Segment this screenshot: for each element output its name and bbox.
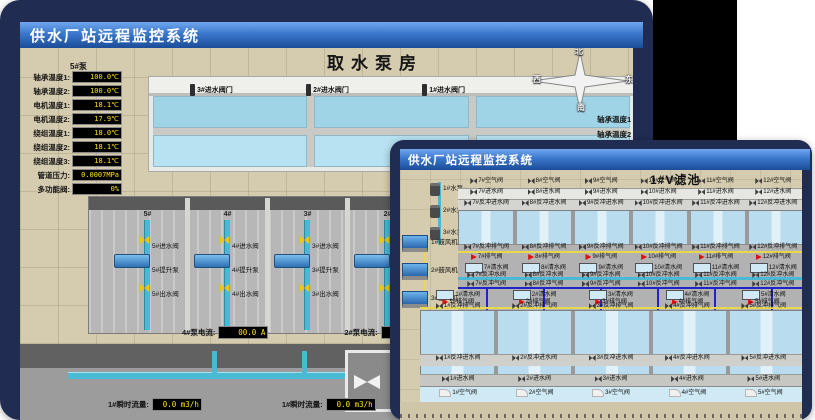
filter-pool	[633, 211, 691, 245]
inlet-valve-label: 3#进水阀	[312, 240, 339, 250]
readout-label: 绕组温度1:	[26, 128, 70, 139]
inlet-valve-icon[interactable]	[528, 189, 535, 195]
backwash-vent-valve: 3#反冲排气阀	[573, 303, 649, 309]
flow-readout: 1#瞬时流量: 0.0 m3/h	[282, 398, 376, 411]
backwash-water-valve-icon[interactable]	[695, 272, 702, 278]
inlet-valve: 4#进水阀	[649, 376, 725, 382]
air-valve: 3#空气阀	[573, 389, 649, 397]
air-valve-label: 1#空气阀	[452, 390, 477, 396]
inlet-valve-icon[interactable]	[698, 189, 705, 195]
backwash-inlet-valve: 1#反冲进水阀	[420, 355, 496, 361]
backwash-inlet-valve: 9#反冲进水阀	[573, 200, 630, 206]
readout-row: 绕组温度1: 18.0℃	[26, 128, 166, 138]
readout-value-display[interactable]: 0%	[72, 183, 122, 195]
inlet-valve-icon[interactable]	[755, 189, 762, 195]
air-valve-label: 10#空气阀	[649, 178, 677, 184]
clean-water-valve-label: 9#清水阀	[598, 265, 623, 271]
air-valve-label: 8#空气阀	[536, 178, 561, 184]
backwash-inlet-valve-icon[interactable]	[579, 200, 586, 206]
bay-number: 5#	[110, 211, 185, 218]
inlet-valve-label: 10#进水阀	[649, 189, 677, 195]
bottom-backwash-vent-row: 1#反冲排气阀 2#反冲排气阀 3#反冲排气阀 4#反冲排气阀 5#反冲排气阀	[420, 303, 802, 309]
right-panel-partial-label: 轴承温度1	[597, 114, 631, 125]
air-pipe-elbow-icon	[669, 389, 681, 397]
backwash-air-valve-icon[interactable]	[525, 281, 532, 287]
blower-icon[interactable]	[402, 235, 428, 252]
top-backwash-water-row: 7#反冲水阀 8#反冲水阀 9#反冲水阀 10#反冲水阀 11#反冲水阀 12#…	[458, 272, 802, 278]
lift-pump-icon[interactable]	[354, 254, 390, 268]
backwash-air-valve-label: 12#反冲气阀	[760, 281, 794, 287]
front-window-title: 供水厂站远程监控系统	[408, 152, 533, 168]
backwash-inlet-valve-icon[interactable]	[749, 200, 756, 206]
backwash-inlet-valve-label: 1#反冲进水阀	[444, 355, 481, 361]
backwash-air-valve: 10#反冲气阀	[630, 281, 687, 287]
readout-label: 管道压力:	[26, 170, 70, 181]
filter-pool	[575, 211, 633, 245]
backwash-inlet-valve-icon[interactable]	[512, 355, 519, 361]
bay-riser-pipe	[144, 220, 150, 330]
filter-pools-7-12	[458, 210, 802, 246]
bottom-air-valve-row: 1#空气阀 2#空气阀 3#空气阀 4#空气阀 5#空气阀	[420, 389, 802, 397]
vent-valve: 7#排气阀	[458, 254, 515, 260]
flow-label: 1#瞬时流量:	[282, 399, 323, 410]
pump-bays: 5# 5#进水阀 5#提升泵 5#出水阀 4# 4#进水阀 4#提升泵	[110, 198, 430, 332]
backwash-water-valve-label: 11#反冲水阀	[703, 272, 737, 278]
backwash-inlet-valve-label: 7#反冲进水阀	[472, 200, 509, 206]
inlet-valve-label: 2#进水阀	[526, 376, 551, 382]
top-backwash-vent-row: 7#反冲排气阀 8#反冲排气阀 9#反冲排气阀 10#反冲排气阀 11#反冲排气…	[458, 244, 802, 250]
readout-value-display[interactable]: 100.0℃	[72, 85, 122, 97]
readout-value-display[interactable]: 100.0℃	[72, 71, 122, 83]
air-valve: 10#空气阀	[630, 178, 687, 184]
vent-valve-label: 12#排气阀	[763, 254, 791, 260]
backwash-water-valve-label: 7#反冲水阀	[475, 272, 506, 278]
clean-water-valve-label: 11#清水阀	[712, 265, 740, 271]
lift-pump-icon[interactable]	[114, 254, 150, 268]
vent-valve-flag-icon[interactable]	[641, 254, 647, 260]
bay-riser-pipe	[304, 220, 310, 330]
backwash-inlet-valve: 10#反冲进水阀	[630, 200, 687, 206]
inlet-valve: 10#进水阀	[630, 189, 687, 195]
backwash-inlet-valve: 11#反冲进水阀	[687, 200, 744, 206]
lift-pump-icon[interactable]	[194, 254, 230, 268]
outlet-valve-label: 4#出水阀	[232, 288, 259, 298]
gate-valve-icon[interactable]	[190, 84, 195, 96]
flow-meter-icon	[354, 375, 380, 389]
bay-number: 3#	[270, 211, 345, 218]
inlet-valve-icon[interactable]	[747, 376, 754, 382]
vent-valve-flag-icon[interactable]	[471, 254, 477, 260]
backwash-water-valve: 8#反冲水阀	[515, 272, 572, 278]
inlet-valve-icon[interactable]	[595, 376, 602, 382]
backwash-water-valve-icon[interactable]	[752, 272, 759, 278]
backwash-inlet-valve-label: 9#反冲进水阀	[587, 200, 624, 206]
clean-water-valve-label: 5#清水阀	[761, 292, 786, 298]
inlet-valve: 11#进水阀	[687, 189, 744, 195]
air-valve-icon[interactable]	[698, 178, 705, 184]
lift-pump-icon[interactable]	[274, 254, 310, 268]
lift-pump-label: 5#提升泵	[152, 264, 179, 274]
air-valve: 11#空气阀	[687, 178, 744, 184]
vent-valve-label: 9#排气阀	[592, 254, 617, 260]
backwash-inlet-valve-label: 12#反冲进水阀	[757, 200, 797, 206]
readout-label: 多功能阀:	[26, 184, 70, 195]
vent-valve-label: 11#排气阀	[706, 254, 734, 260]
backwash-vent-valve-label: 4#反冲排气阀	[673, 303, 710, 309]
readout-row: 电机温度1: 18.1℃	[26, 100, 166, 110]
air-valve-label: 9#空气阀	[593, 178, 618, 184]
readout-row: 轴承温度1: 100.0℃	[26, 72, 166, 82]
clean-water-valve-label: 3#清水阀	[608, 292, 633, 298]
gate-valve-icon[interactable]	[422, 84, 427, 96]
desktop: 供水厂站远程监控系统 取水泵房 5#泵 轴承温度1: 100.0℃ 轴承温度2:…	[0, 0, 815, 420]
backwash-vent-valve-icon[interactable]	[512, 303, 519, 309]
backwash-vent-valve: 11#反冲排气阀	[687, 244, 744, 250]
readout-label: 轴承温度2:	[26, 86, 70, 97]
blower-label: 2#鼓风机	[431, 268, 458, 275]
bottom-inlet-valve-row: 1#进水阀 2#进水阀 3#进水阀 4#进水阀 5#进水阀	[420, 376, 802, 382]
pipe-stub	[212, 351, 217, 373]
backwash-inlet-valve-icon[interactable]	[436, 355, 443, 361]
air-valve-label: 7#空气阀	[478, 178, 503, 184]
vent-valve: 11#排气阀	[687, 254, 744, 260]
backwash-water-valve: 9#反冲水阀	[573, 272, 630, 278]
backwash-air-valve-label: 10#反冲气阀	[646, 281, 680, 287]
water-cell	[314, 96, 468, 128]
air-valve: 8#空气阀	[515, 178, 572, 184]
readout-value-display[interactable]: 18.0℃	[72, 127, 122, 139]
inlet-valve: 8#进水阀	[515, 189, 572, 195]
bay-riser-pipe	[224, 220, 230, 330]
backwash-water-valve-label: 9#反冲水阀	[590, 272, 621, 278]
vent-valve-flag-icon[interactable]	[585, 254, 591, 260]
top-vent-valve-row: 7#排气阀 8#排气阀 9#排气阀 10#排气阀 11#排气阀 12#排气阀	[458, 254, 802, 260]
backwash-air-valve-icon[interactable]	[467, 281, 474, 287]
readout-row: 轴承温度2: 100.0℃	[26, 86, 166, 96]
backwash-air-valve-icon[interactable]	[638, 281, 645, 287]
backwash-inlet-valve: 4#反冲进水阀	[649, 355, 725, 361]
backwash-vent-valve: 7#反冲排气阀	[458, 244, 515, 250]
inlet-valve-icon[interactable]	[641, 189, 648, 195]
backwash-vent-valve: 9#反冲排气阀	[573, 244, 630, 250]
readout-value-display[interactable]: 18.1℃	[72, 141, 122, 153]
front-window-titlebar: 供水厂站远程监控系统	[400, 149, 810, 170]
air-valve: 2#空气阀	[496, 389, 572, 397]
vent-valve-label: 8#排气阀	[535, 254, 560, 260]
compass-west-label: 西	[533, 74, 541, 85]
inlet-gate-valve[interactable]: 3#进水阀门	[190, 84, 233, 96]
inlet-valve-label: 3#进水阀	[603, 376, 628, 382]
outlet-valve-label: 3#出水阀	[312, 288, 339, 298]
backwash-vent-valve: 2#反冲排气阀	[496, 303, 572, 309]
backwash-air-valve-icon[interactable]	[695, 281, 702, 287]
backwash-air-pipe	[458, 287, 802, 289]
water-pump-icon[interactable]	[430, 205, 440, 218]
water-cell	[153, 135, 307, 167]
top-inlet-valve-row: 7#进水阀 8#进水阀 9#进水阀 10#进水阀 11#进水阀 12#进水阀	[458, 189, 802, 195]
inlet-valve-label: 5#进水阀	[152, 240, 179, 250]
backwash-air-valve-label: 8#反冲气阀	[533, 281, 564, 287]
inlet-valve-label: 5#进水阀	[755, 376, 780, 382]
backwash-vent-valve: 1#反冲排气阀	[420, 303, 496, 309]
current-label: 2#泵电流:	[344, 327, 377, 338]
backwash-water-valve: 10#反冲水阀	[630, 272, 687, 278]
backwash-vent-valve-icon[interactable]	[436, 303, 443, 309]
backwash-inlet-valve: 7#反冲进水阀	[458, 200, 515, 206]
readout-label: 绕组温度2:	[26, 142, 70, 153]
backwash-inlet-valve: 2#反冲进水阀	[496, 355, 572, 361]
backwash-vent-valve-icon[interactable]	[692, 244, 699, 250]
backwash-vent-valve: 5#反冲排气阀	[726, 303, 802, 309]
readout-row: 多功能阀: 0%	[26, 184, 166, 194]
backwash-inlet-valve-label: 11#反冲进水阀	[700, 200, 740, 206]
inlet-valve: 3#进水阀	[573, 376, 649, 382]
inlet-valve-icon[interactable]	[671, 376, 678, 382]
backwash-water-valve: 12#反冲水阀	[745, 272, 802, 278]
backwash-water-valve-icon[interactable]	[525, 272, 532, 278]
backwash-vent-valve-label: 9#反冲排气阀	[587, 244, 624, 250]
backwash-air-valve: 8#反冲气阀	[515, 281, 572, 287]
clean-water-valve-label: 2#清水阀	[532, 292, 557, 298]
flow-value-display[interactable]: 0.0 m3/h	[326, 398, 376, 411]
pump5-readout-panel: 轴承温度1: 100.0℃ 轴承温度2: 100.0℃ 电机温度1: 18.1℃…	[26, 72, 166, 194]
backwash-vent-valve-label: 3#反冲排气阀	[597, 303, 634, 309]
current-value-display[interactable]: 00.0 A	[218, 326, 268, 339]
inlet-gate-valve[interactable]: 2#进水阀门	[306, 84, 349, 96]
inlet-valve-icon[interactable]	[442, 376, 449, 382]
backwash-inlet-valve-label: 8#反冲进水阀	[530, 200, 567, 206]
inlet-gate-valve[interactable]: 1#进水阀门	[422, 84, 465, 96]
backwash-inlet-valve-icon[interactable]	[665, 355, 672, 361]
front-window: 供水厂站远程监控系统 1#V滤池 1#水泵 2#水泵 3#水泵	[390, 140, 812, 420]
backwash-air-valve: 11#反冲气阀	[687, 281, 744, 287]
air-valve-icon[interactable]	[470, 178, 477, 184]
backwash-inlet-valve: 8#反冲进水阀	[515, 200, 572, 206]
pump-bay: 5# 5#进水阀 5#提升泵 5#出水阀	[110, 198, 190, 332]
backwash-inlet-valve: 5#反冲进水阀	[726, 355, 802, 361]
backwash-water-valve-icon[interactable]	[582, 272, 589, 278]
readout-label: 电机温度1:	[26, 100, 70, 111]
vent-valve-label: 7#排气阀	[478, 254, 503, 260]
gate-valve-label: 3#进水阀门	[197, 87, 233, 94]
air-pipe-elbow-icon	[439, 389, 451, 397]
backwash-air-valve-icon[interactable]	[582, 281, 589, 287]
bottom-apron	[400, 402, 802, 420]
readout-label: 绕组温度3:	[26, 156, 70, 167]
air-valve: 12#空气阀	[745, 178, 802, 184]
backwash-water-valve: 11#反冲水阀	[687, 272, 744, 278]
inlet-valve-label: 7#进水阀	[478, 189, 503, 195]
pump-bay: 4# 4#进水阀 4#提升泵 4#出水阀	[190, 198, 270, 332]
blower: 2#鼓风机	[402, 264, 458, 279]
inlet-valve-label: 9#进水阀	[593, 189, 618, 195]
backwash-vent-valve-label: 8#反冲排气阀	[530, 244, 567, 250]
blower: 1#鼓风机	[402, 236, 458, 251]
backwash-vent-valve-icon[interactable]	[464, 244, 471, 250]
backwash-vent-pipe-top	[458, 251, 802, 253]
gate-valve-label: 2#进水阀门	[313, 87, 349, 94]
backwash-vent-valve-label: 7#反冲排气阀	[472, 244, 509, 250]
back-window-title: 供水厂站远程监控系统	[30, 25, 200, 46]
inlet-valve: 2#进水阀	[496, 376, 572, 382]
air-valve-label: 12#空气阀	[763, 178, 791, 184]
compass-rose: 北 西 南 东	[525, 48, 633, 114]
backwash-inlet-valve-icon[interactable]	[635, 200, 642, 206]
backwash-vent-valve-icon[interactable]	[579, 244, 586, 250]
water-cell	[153, 96, 307, 128]
air-pipe-elbow-icon	[745, 389, 757, 397]
vent-valve: 9#排气阀	[573, 254, 630, 260]
readout-value-display[interactable]: 18.1℃	[72, 99, 122, 111]
backwash-air-valve-label: 7#反冲气阀	[475, 281, 506, 287]
inlet-valve: 1#进水阀	[420, 376, 496, 382]
backwash-water-valve-label: 10#反冲水阀	[646, 272, 680, 278]
air-valve-label: 3#空气阀	[605, 390, 630, 396]
air-valve-label: 4#空气阀	[682, 390, 707, 396]
backwash-water-valve-icon[interactable]	[638, 272, 645, 278]
pump-bay: 3# 3#进水阀 3#提升泵 3#出水阀	[270, 198, 350, 332]
water-pump-icon[interactable]	[430, 183, 440, 196]
vent-valve-label: 10#排气阀	[648, 254, 676, 260]
backwash-vent-valve-label: 5#反冲排气阀	[749, 303, 786, 309]
gate-valve-label: 1#进水阀门	[429, 87, 465, 94]
clean-water-valve-label: 8#清水阀	[541, 265, 566, 271]
bottom-backwash-inlet-row: 1#反冲进水阀 2#反冲进水阀 3#反冲进水阀 4#反冲进水阀 5#反冲进水阀	[420, 355, 802, 361]
inlet-valve-label: 12#进水阀	[763, 189, 791, 195]
backwash-vent-valve-icon[interactable]	[741, 303, 748, 309]
inlet-valve-label: 1#进水阀	[450, 376, 475, 382]
backwash-air-valve: 9#反冲气阀	[573, 281, 630, 287]
air-valve-icon[interactable]	[528, 178, 535, 184]
inlet-valve-icon[interactable]	[518, 376, 525, 382]
inlet-valve-label: 4#进水阀	[679, 376, 704, 382]
readout-label: 轴承温度1:	[26, 72, 70, 83]
backwash-vent-valve: 12#反冲排气阀	[745, 244, 802, 250]
inlet-valve: 12#进水阀	[745, 189, 802, 195]
backwash-inlet-valve-icon[interactable]	[522, 200, 529, 206]
backwash-vent-valve-icon[interactable]	[589, 303, 596, 309]
clean-water-valve-label: 1#清水阀	[455, 292, 480, 298]
backwash-vent-valve-label: 12#反冲排气阀	[757, 244, 797, 250]
air-valve: 4#空气阀	[649, 389, 725, 397]
backwash-inlet-valve-icon[interactable]	[741, 355, 748, 361]
filter-pool	[691, 211, 749, 245]
backwash-inlet-valve-icon[interactable]	[692, 200, 699, 206]
vent-valve: 10#排气阀	[630, 254, 687, 260]
compass-south-label: 南	[577, 102, 585, 113]
backwash-inlet-valve: 3#反冲进水阀	[573, 355, 649, 361]
backwash-vent-valve-icon[interactable]	[522, 244, 529, 250]
air-valve-label: 11#空气阀	[706, 178, 734, 184]
v-filter-pool-view: 1#V滤池 1#水泵 2#水泵 3#水泵	[400, 170, 802, 420]
pipe-stub	[302, 351, 307, 373]
backwash-air-valve: 12#反冲气阀	[745, 281, 802, 287]
backwash-vent-valve-label: 2#反冲排气阀	[520, 303, 557, 309]
backwash-air-valve: 7#反冲气阀	[458, 281, 515, 287]
backwash-air-valve-icon[interactable]	[752, 281, 759, 287]
air-valve: 9#空气阀	[573, 178, 630, 184]
inlet-valve-icon[interactable]	[470, 189, 477, 195]
air-valve: 5#空气阀	[726, 389, 802, 397]
flow-value-display[interactable]: 0.0 m3/h	[152, 398, 202, 411]
backwash-water-valve-label: 8#反冲水阀	[533, 272, 564, 278]
top-air-valve-row: 7#空气阀 8#空气阀 9#空气阀 10#空气阀 11#空气阀 12#空气阀	[458, 178, 802, 184]
readout-row: 绕组温度3: 18.1℃	[26, 156, 166, 166]
flow-label: 1#瞬时流量:	[108, 399, 149, 410]
filter-pool	[459, 211, 517, 245]
backwash-vent-valve: 8#反冲排气阀	[515, 244, 572, 250]
vent-valve-flag-icon[interactable]	[756, 254, 762, 260]
backwash-inlet-valve-label: 10#反冲进水阀	[643, 200, 683, 206]
inlet-gate-valves: 3#进水阀门 2#进水阀门 1#进水阀门	[190, 84, 465, 96]
air-valve-icon[interactable]	[641, 178, 648, 184]
backwash-vent-valve-icon[interactable]	[635, 244, 642, 250]
inlet-valve-icon[interactable]	[585, 189, 592, 195]
backwash-air-valve-label: 11#反冲气阀	[703, 281, 737, 287]
vent-valve: 8#排气阀	[515, 254, 572, 260]
gate-valve-icon[interactable]	[306, 84, 311, 96]
readout-value-display[interactable]: 0.0007MPa	[72, 169, 122, 181]
backwash-vent-valve-label: 11#反冲排气阀	[700, 244, 740, 250]
flow-readout: 1#瞬时流量: 0.0 m3/h	[108, 398, 202, 411]
readout-label: 电机温度2:	[26, 114, 70, 125]
backwash-inlet-valve-label: 5#反冲进水阀	[749, 355, 786, 361]
top-backwash-inlet-row: 7#反冲进水阀 8#反冲进水阀 9#反冲进水阀 10#反冲进水阀 11#反冲进水…	[458, 200, 802, 206]
backwash-vent-valve-icon[interactable]	[665, 303, 672, 309]
top-backwash-air-row: 7#反冲气阀 8#反冲气阀 9#反冲气阀 10#反冲气阀 11#反冲气阀 12#…	[458, 281, 802, 287]
air-pipe-elbow-icon	[516, 389, 528, 397]
backwash-inlet-valve-icon[interactable]	[589, 355, 596, 361]
filter-pool	[749, 211, 802, 245]
backwash-vent-valve-label: 1#反冲排气阀	[444, 303, 481, 309]
scene-title-intake-pump-house: 取水泵房	[275, 49, 475, 74]
air-valve: 1#空气阀	[420, 389, 496, 397]
filter-pool	[517, 211, 575, 245]
clean-water-valve-label: 7#清水阀	[484, 265, 509, 271]
air-valve-label: 2#空气阀	[529, 390, 554, 396]
backwash-vent-valve: 4#反冲排气阀	[649, 303, 725, 309]
vent-valve-flag-icon[interactable]	[699, 254, 705, 260]
outlet-valve-label: 5#出水阀	[152, 288, 179, 298]
clean-water-valve-label: 10#清水阀	[654, 265, 682, 271]
backwash-inlet-valve-icon[interactable]	[464, 200, 471, 206]
readout-value-display[interactable]: 18.1℃	[72, 155, 122, 167]
blower-label: 1#鼓风机	[431, 240, 458, 247]
right-panel-partial-label: 轴承温度2	[597, 129, 631, 140]
backwash-vent-valve-label: 10#反冲排气阀	[643, 244, 683, 250]
inlet-valve: 7#进水阀	[458, 189, 515, 195]
vent-valve-flag-icon[interactable]	[528, 254, 534, 260]
readout-row: 绕组温度2: 18.1℃	[26, 142, 166, 152]
air-valve-label: 5#空气阀	[758, 390, 783, 396]
backwash-inlet-valve-label: 2#反冲进水阀	[520, 355, 557, 361]
readout-row: 电机温度2: 17.9℃	[26, 114, 166, 124]
back-window-titlebar: 供水厂站远程监控系统	[20, 22, 643, 48]
air-valve-icon[interactable]	[585, 178, 592, 184]
backwash-vent-valve-icon[interactable]	[749, 244, 756, 250]
backwash-water-valve-icon[interactable]	[467, 272, 474, 278]
current-label: 4#泵电流:	[182, 327, 215, 338]
backwash-water-valve-label: 12#反冲水阀	[760, 272, 794, 278]
blower-icon[interactable]	[402, 263, 428, 280]
backdrop-black-panel	[653, 0, 737, 143]
readout-row: 管道压力: 0.0007MPa	[26, 170, 166, 180]
inlet-valve: 5#进水阀	[726, 376, 802, 382]
vent-valve: 12#排气阀	[745, 254, 802, 260]
air-valve-icon[interactable]	[755, 178, 762, 184]
readout-value-display[interactable]: 17.9℃	[72, 113, 122, 125]
air-pipe-elbow-icon	[592, 389, 604, 397]
